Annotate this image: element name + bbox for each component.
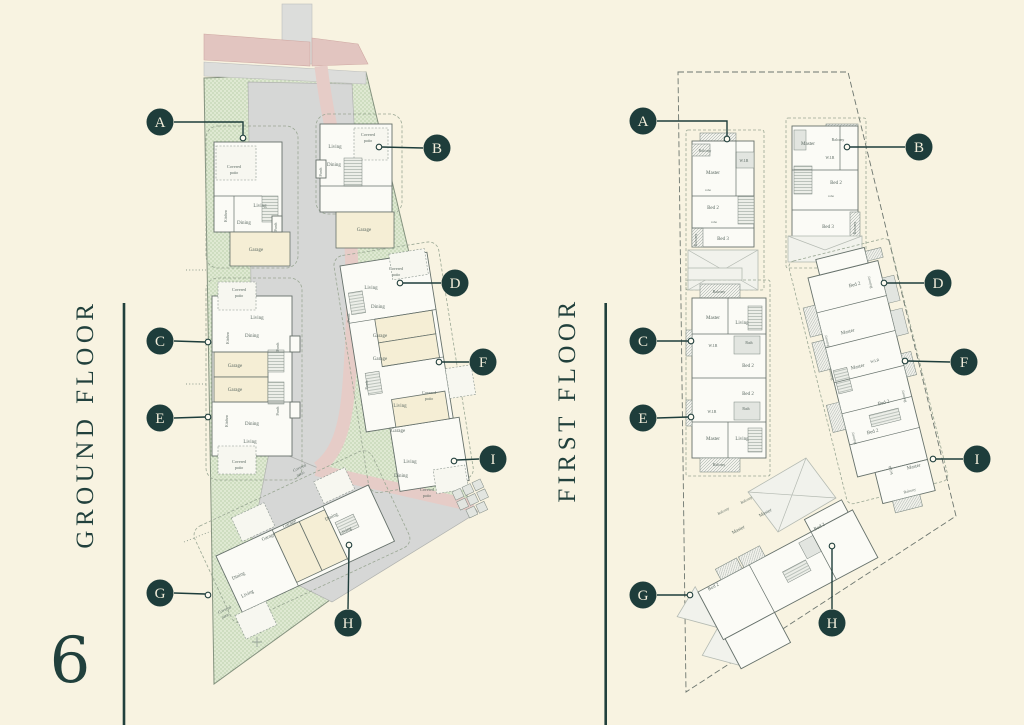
- room-label: Garage: [357, 228, 372, 233]
- room-label: Kitchen: [225, 415, 229, 427]
- room-label: Living: [250, 316, 264, 321]
- unit-marker-letter: G: [155, 586, 166, 602]
- ground-floor-plan: CoveredpatioLivingDiningKitchenPorchGara…: [147, 4, 507, 684]
- room-label: Bed 2: [742, 392, 754, 397]
- leader-end-dot: [724, 136, 730, 142]
- room-label: Balcony: [740, 495, 753, 505]
- room-label: Porch: [347, 313, 351, 322]
- room-label: Living: [364, 286, 378, 291]
- unit-marker-letter: E: [638, 411, 647, 427]
- page: CoveredpatioLivingDiningKitchenPorchGara…: [0, 0, 1024, 725]
- unit-marker-letter: E: [155, 411, 164, 427]
- room-label: Master: [801, 142, 815, 147]
- room-label: Master: [706, 437, 720, 442]
- leader-end-dot: [930, 456, 936, 462]
- first-marker-c[interactable]: C: [630, 328, 694, 355]
- room-label: robe: [705, 188, 712, 192]
- room-label: Master: [706, 171, 720, 176]
- room-label: Living: [393, 404, 407, 409]
- unit-marker-letter: F: [960, 355, 968, 371]
- room-label: Covered: [232, 459, 247, 464]
- room-label: Bath: [742, 407, 749, 411]
- room-label: robe: [711, 220, 718, 224]
- first-marker-i[interactable]: I: [930, 446, 990, 473]
- leader-line: [382, 147, 423, 148]
- room-label: Living: [735, 437, 749, 442]
- page-number: 6: [50, 624, 91, 698]
- room-label: Covered: [232, 287, 247, 292]
- leader-end-dot: [205, 339, 211, 345]
- ground-marker-g[interactable]: G: [147, 580, 211, 607]
- room-label: Balcony: [713, 290, 726, 294]
- unit-marker-letter: H: [343, 616, 354, 632]
- first-floor-plan: BalconyMasterW.I.RrobeBed 2robeBed 3Balc…: [630, 72, 991, 692]
- room-label: Covered: [361, 132, 376, 137]
- unit-marker-letter: A: [155, 115, 166, 131]
- unit-b-first[interactable]: [786, 118, 866, 268]
- room-label: Dining: [371, 305, 385, 310]
- room-label: Balcony: [853, 222, 857, 235]
- room-label: Bath: [745, 341, 752, 345]
- room-label: Porch: [276, 342, 280, 351]
- room-label: Living: [243, 440, 257, 445]
- room-label: robe: [828, 194, 835, 198]
- plan-canvas: CoveredpatioLivingDiningKitchenPorchGara…: [0, 0, 1024, 725]
- room-label: Living: [403, 460, 417, 465]
- room-label: Master: [706, 316, 720, 321]
- unit-marker-letter: F: [479, 355, 487, 371]
- room-label: Balcony: [832, 138, 845, 142]
- unit-ce-ground[interactable]: [212, 282, 300, 474]
- room-label: patio: [423, 493, 431, 498]
- unit-marker-letter: I: [491, 452, 496, 468]
- leader-end-dot: [205, 414, 211, 420]
- room-label: patio: [425, 396, 433, 401]
- room-label: Garage: [228, 388, 243, 393]
- room-label: Dining: [394, 474, 408, 479]
- unit-ce-first[interactable]: [686, 268, 770, 476]
- room-label: Porch: [276, 406, 280, 415]
- first-floor-title: FIRST FLOOR: [554, 297, 581, 502]
- room-label: Garage: [373, 357, 388, 362]
- room-label: Bed 2: [830, 181, 842, 186]
- leader-end-dot: [376, 144, 382, 150]
- leader-end-dot: [829, 543, 835, 549]
- road-top-right: [312, 38, 368, 66]
- room-label: patio: [235, 293, 243, 298]
- leader-line: [174, 417, 205, 418]
- unit-marker-letter: G: [638, 588, 649, 604]
- room-label: Dining: [327, 163, 341, 168]
- room-label: Covered: [420, 487, 435, 492]
- leader-end-dot: [688, 338, 694, 344]
- unit-marker-letter: C: [638, 334, 648, 350]
- leader-line: [348, 548, 349, 609]
- first-floor-rule: [604, 303, 607, 725]
- room-label: Living: [735, 321, 749, 326]
- leader-end-dot: [881, 280, 887, 286]
- room-label: Balcony: [717, 506, 730, 516]
- room-label: Covered: [422, 390, 437, 395]
- room-label: Covered: [389, 266, 404, 271]
- leader-end-dot: [436, 359, 442, 365]
- leader-end-dot: [205, 592, 211, 598]
- survey-line: [184, 530, 214, 542]
- room-label: Balcony: [694, 234, 698, 247]
- leader-end-dot: [397, 280, 403, 286]
- unit-marker-letter: C: [155, 334, 165, 350]
- room-label: Garage: [391, 429, 406, 434]
- leader-line: [457, 459, 479, 460]
- room-label: W.I.R: [708, 410, 717, 414]
- room-label: Garage: [373, 334, 388, 339]
- leader-end-dot: [844, 144, 850, 150]
- leader-line: [174, 341, 205, 342]
- room-label: patio: [230, 170, 238, 175]
- unit-marker-letter: B: [914, 140, 924, 156]
- leader-line: [174, 593, 205, 594]
- unit-marker-letter: I: [975, 452, 980, 468]
- ground-marker-e[interactable]: E: [147, 405, 211, 432]
- room-label: Bed 2: [742, 364, 754, 369]
- room-label: patio: [235, 465, 243, 470]
- room-label: Kitchen: [224, 210, 228, 222]
- room-label: Living: [328, 145, 342, 150]
- room-label: Porch: [274, 222, 278, 231]
- room-label: Garage: [228, 364, 243, 369]
- room-label: Bed 3: [822, 225, 834, 230]
- room-label: Dining: [245, 334, 259, 339]
- room-label: Dining: [237, 221, 251, 226]
- leader-end-dot: [687, 592, 693, 598]
- first-marker-g[interactable]: G: [630, 582, 693, 609]
- unit-a-first[interactable]: [686, 130, 764, 290]
- unit-marker-letter: D: [933, 276, 944, 292]
- ground-marker-c[interactable]: C: [147, 328, 211, 355]
- room-label: Porch: [365, 380, 369, 389]
- unit-marker-letter: D: [450, 276, 461, 292]
- room-label: Living: [253, 204, 267, 209]
- room-label: W.I.R: [826, 156, 835, 160]
- room-label: Dining: [245, 422, 259, 427]
- room-label: W.I.R: [740, 159, 749, 163]
- room-label: Covered: [227, 164, 242, 169]
- room-label: patio: [392, 272, 400, 277]
- room-label: patio: [364, 138, 372, 143]
- room-label: Kitchen: [226, 332, 230, 344]
- room-label: Garage: [249, 248, 264, 253]
- unit-marker-letter: B: [432, 141, 442, 157]
- room-label: Bed 3: [717, 237, 729, 242]
- room-label: Balcony: [713, 463, 726, 467]
- leader-line: [908, 361, 950, 362]
- room-label: W.I.R: [709, 344, 718, 348]
- leader-end-dot: [451, 458, 457, 464]
- ground-floor-rule: [123, 303, 126, 725]
- first-marker-e[interactable]: E: [630, 405, 694, 432]
- room-label: Master: [731, 525, 746, 536]
- room-label: Porch: [319, 167, 323, 176]
- unit-marker-letter: A: [638, 114, 649, 130]
- leader-end-dot: [346, 542, 352, 548]
- leader-end-dot: [240, 135, 246, 141]
- ground-floor-title: GROUND FLOOR: [72, 299, 99, 548]
- unit-marker-letter: H: [827, 616, 838, 632]
- room-label: Balcony: [699, 149, 712, 153]
- leader-line: [657, 417, 688, 418]
- leader-end-dot: [688, 414, 694, 420]
- leader-end-dot: [902, 358, 908, 364]
- room-label: Bed 2: [707, 206, 719, 211]
